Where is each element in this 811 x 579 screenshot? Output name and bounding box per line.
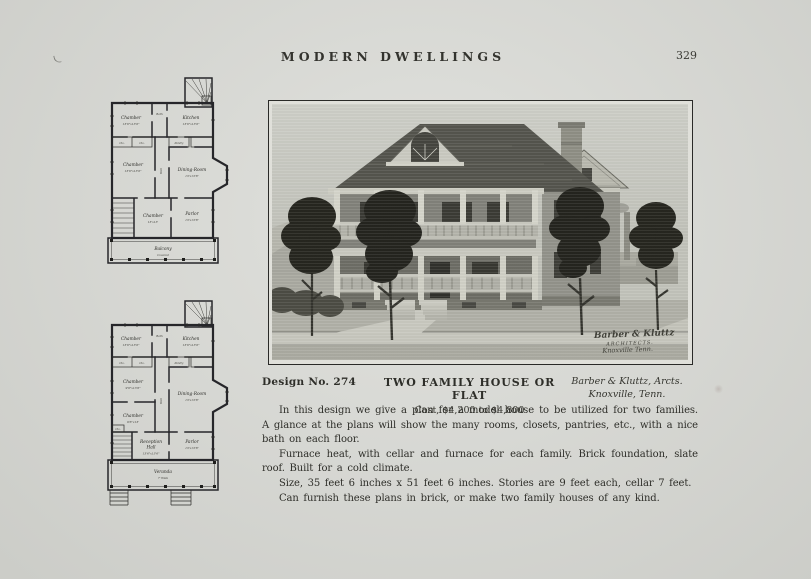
balcony-sublabel: Covered [157,253,169,257]
room-label: Chamber [143,214,164,219]
book-page: MODERN DWELLINGS 329 [0,0,811,579]
room-label: Kitchen [182,337,200,342]
room-label: Chamber [121,116,142,121]
closet-label: Clo. [139,141,144,145]
room-label: Dining-Room [177,392,206,397]
body-paragraph-1: In this design we give a plan for a mode… [262,404,698,448]
room-label: Kitchen [182,116,200,121]
body-paragraph-2: Furnace heat, with cellar and furnace fo… [262,448,698,477]
architect-city: Knoxville, Tenn. [559,389,695,402]
room-label: Hall [145,446,156,451]
architect-credit: Barber & Kluttz, Arcts. Knoxville, Tenn. [559,376,695,401]
closet-label: Clo. [115,427,120,431]
paper-smudge [714,384,723,394]
pantry-label: Pantry [174,141,184,145]
room-dims: 13'x13'6" [185,174,199,178]
room-dims: 13'6"x13'6" [143,452,161,456]
house-photo-frame: Barber & Kluttz ARCHITECTS. Knoxville Te… [268,100,693,365]
floor-plan-second-floor-drawing: Chamber 13'6"x13'6" Bath Kitchen 13'6"x1… [107,70,229,266]
room-label: Reception [139,440,162,445]
house-illustration: Barber & Kluttz ARCHITECTS. Knoxville Te… [272,104,688,360]
room-label: Chamber [123,163,144,168]
hall-label: Hall [159,168,163,175]
floor-band [330,248,542,256]
hall-label: Hall [159,398,163,405]
room-label: Bath [155,112,163,116]
room-dims: 13'6"x13'6" [183,343,201,347]
balcony-label: Balcony [153,247,172,252]
closet-label: Clo. [119,141,124,145]
house-photo: Barber & Kluttz ARCHITECTS. Knoxville Te… [272,104,688,360]
pantry-label: Pantry [174,361,184,365]
description-text: In this design we give a plan for a mode… [262,404,698,506]
room-label: Chamber [123,380,144,385]
room-label: Parlor [184,440,199,445]
design-title: TWO FAMILY HOUSE OR FLAT [380,376,559,402]
room-dims: 13'6"x13'6" [183,122,201,126]
floor-plan-second-floor: Chamber 13'6"x13'6" Bath Kitchen 13'6"x1… [107,70,229,266]
page-number: 329 [676,49,697,62]
room-label: Chamber [121,337,142,342]
room-label: Bath [155,334,163,338]
room-dims: 13'x13'6" [185,398,199,402]
floor-plan-first-floor: Chamber 13'6"x13'6" Bath Kitchen 13'6"x1… [107,297,229,507]
room-label: Dining-Room [177,168,206,173]
veranda-sublabel: 7' Wide [158,476,169,480]
room-dims: 13'x13'6" [185,218,199,222]
room-dims: 13'6"x13'6" [123,122,141,126]
closet-label: Clo. [119,361,124,365]
room-label: Parlor [184,212,199,217]
design-number: Design No. 274 [262,376,380,388]
body-paragraph-3: Size, 35 feet 6 inches x 51 feet 6 inche… [262,477,698,492]
room-dims: 13'x13' [148,220,159,224]
room-dims: 13'6"x13'6" [123,343,141,347]
room-dims: 13'x13'6" [185,446,199,450]
architect-name: Barber & Kluttz, Arcts. [559,376,695,389]
room-label: Chamber [123,414,144,419]
first-story-porch [334,256,538,300]
floor-plan-first-floor-drawing: Chamber 13'6"x13'6" Bath Kitchen 13'6"x1… [107,297,229,507]
page-title: MODERN DWELLINGS [0,49,786,64]
room-dims: 9'6"x13'6" [125,386,141,390]
room-dims: 13'6"x13'6" [125,169,143,173]
closet-label: Clo. [139,361,144,365]
veranda-label: Veranda [154,470,172,475]
room-dims: 9'6"x13' [127,420,139,424]
body-paragraph-4: Can furnish these plans in brick, or mak… [262,492,698,507]
